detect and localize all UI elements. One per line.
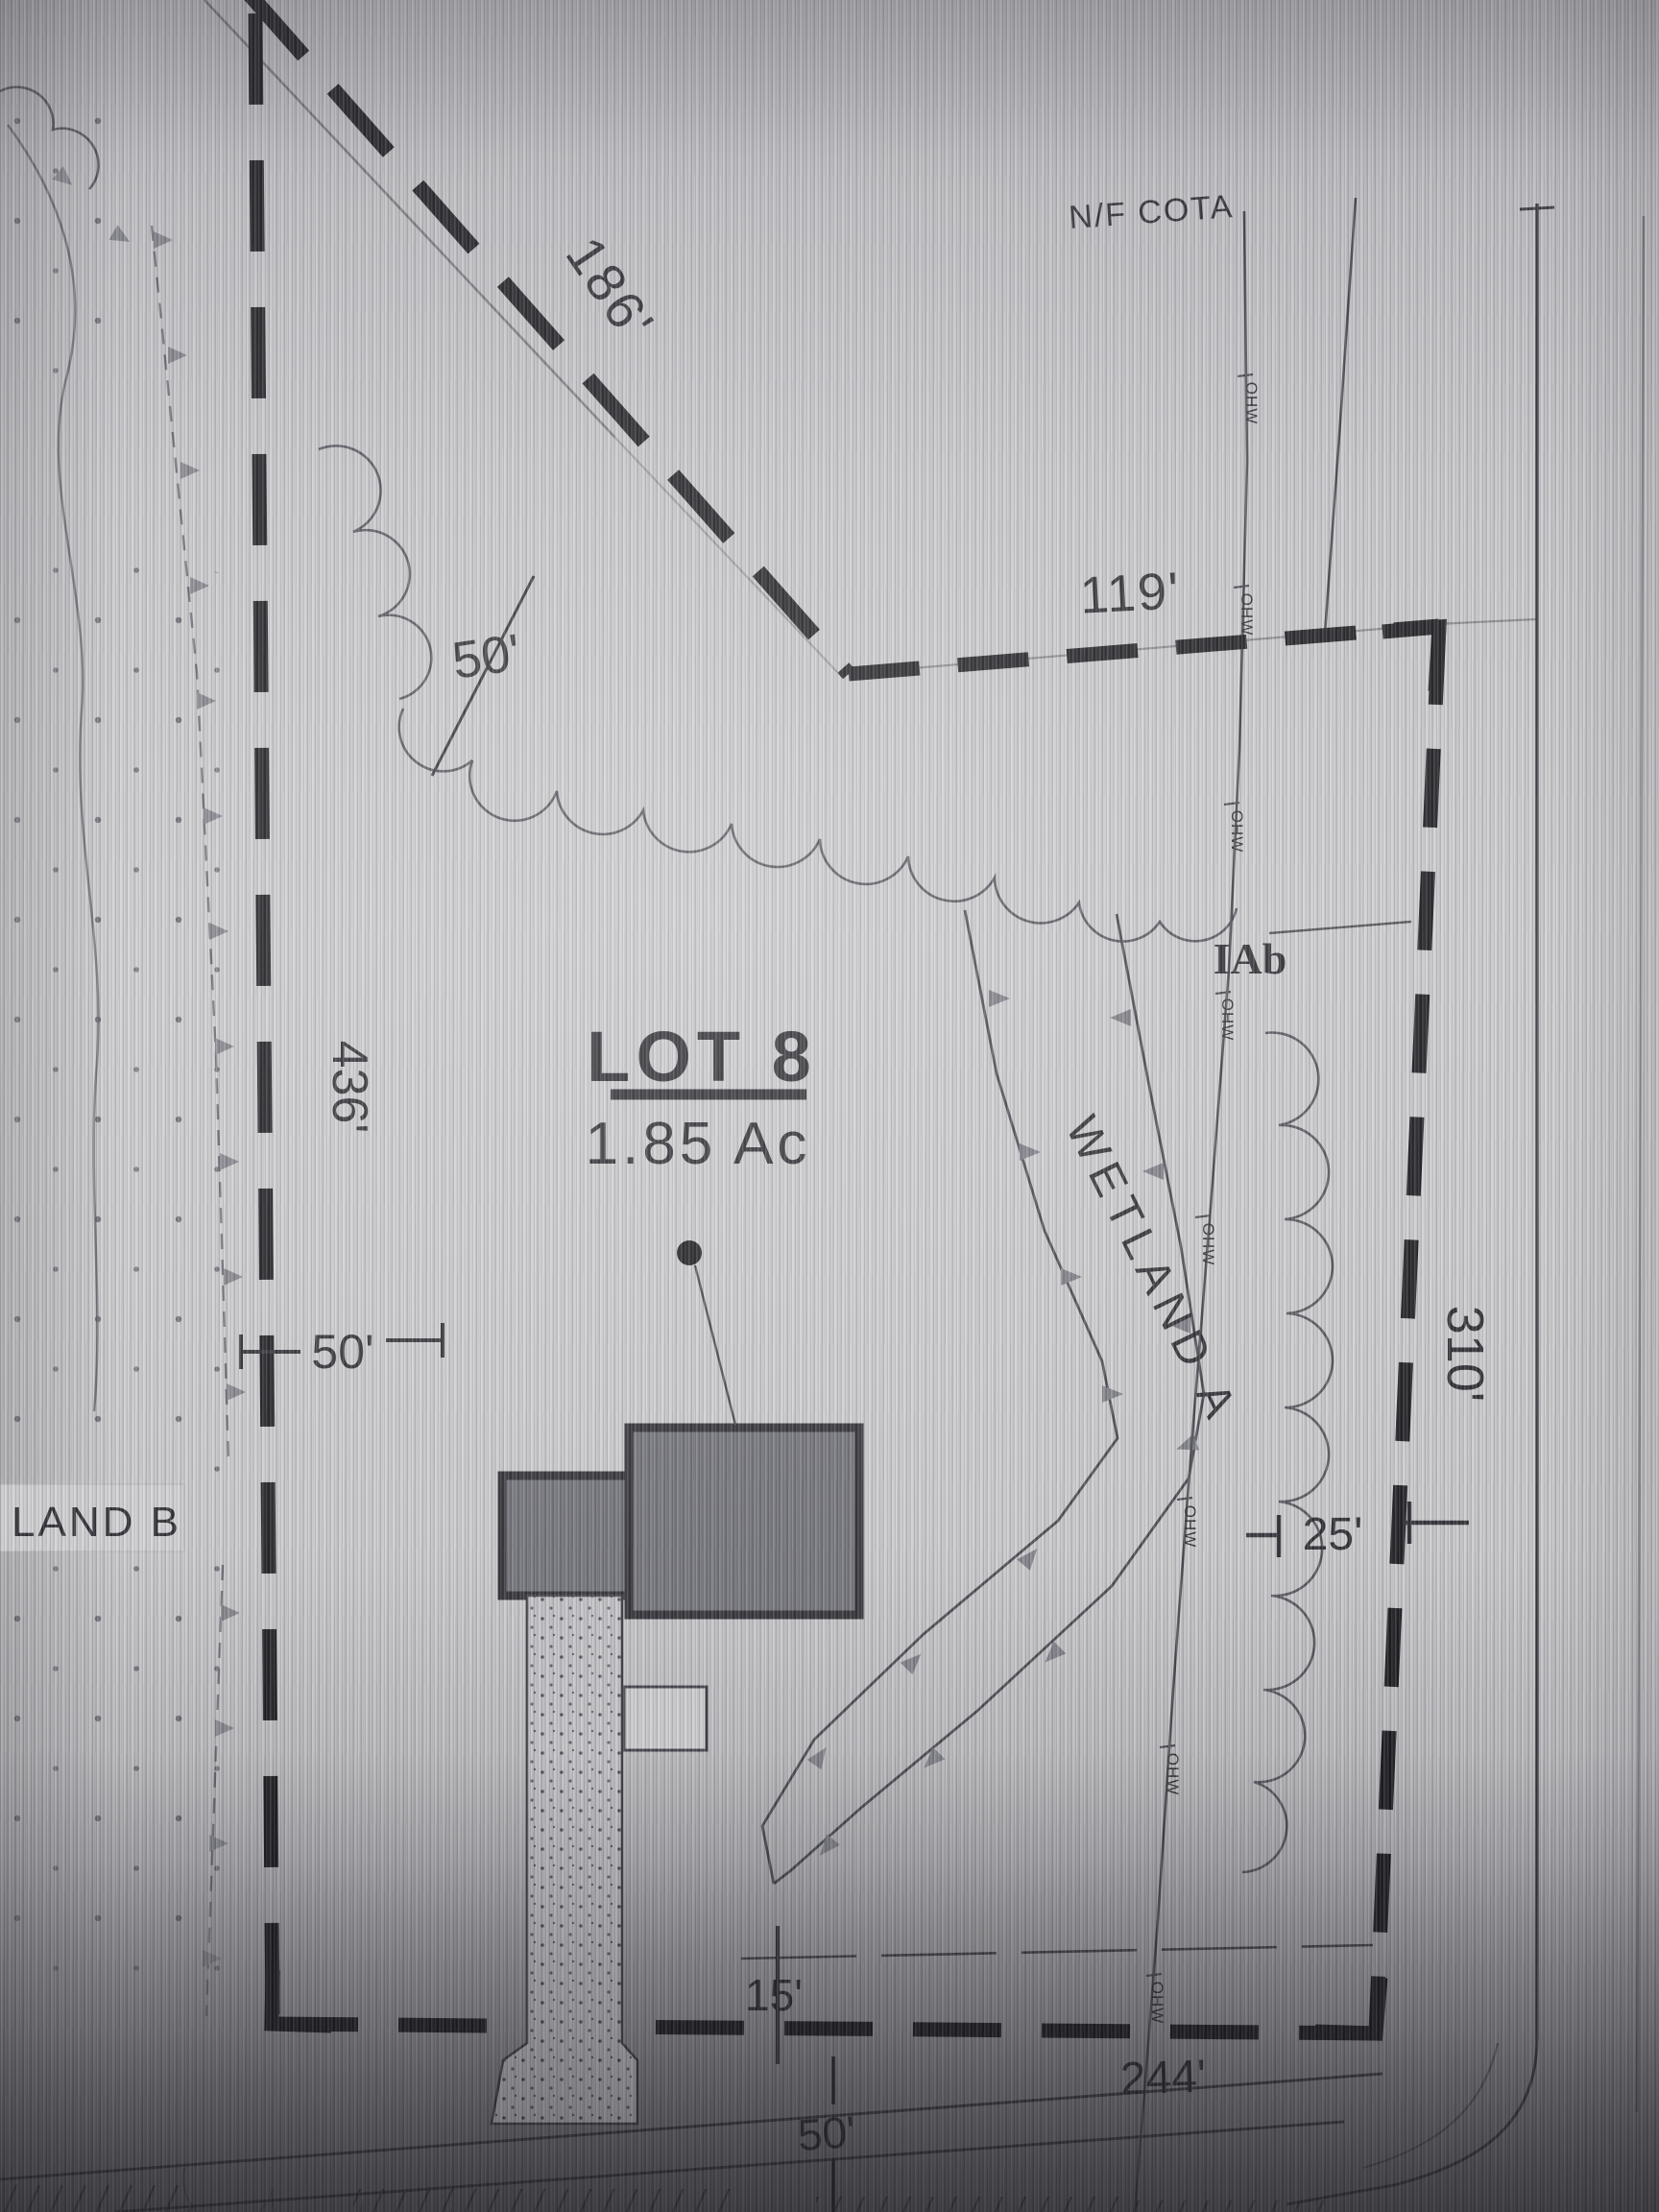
lot-title: LOT 8 <box>587 1017 817 1096</box>
dim-25-label: 25' <box>1303 1509 1363 1560</box>
dim-119-label: 119' <box>1078 562 1181 624</box>
dim-50-top-label: 50' <box>448 624 523 690</box>
wetland-b-stipple <box>0 67 248 2016</box>
site-plan-drawing: OHW OHW OHW OHW OHW OHW OHW OHW <box>0 0 1659 2212</box>
side-pad <box>624 1687 707 1750</box>
wetland-b-label: LAND B <box>12 1499 181 1546</box>
abutter-line <box>1325 198 1356 634</box>
ohw-label: OHW <box>1218 998 1237 1042</box>
property-boundary <box>248 0 1439 2033</box>
ohw-label: OHW <box>1238 593 1256 637</box>
ohw-label: OHW <box>1181 1505 1199 1549</box>
ohw-label: OHW <box>1242 382 1261 425</box>
dim-186-label: 186' <box>555 226 667 352</box>
dimension-lines <box>241 576 1469 2212</box>
well-symbol <box>677 1240 735 1425</box>
wetland-b-label-box: LAND B <box>0 1484 184 1551</box>
driveway <box>492 1596 637 2124</box>
dim-310-label: 310' <box>1436 1306 1494 1402</box>
dim-50-bottom-label: 50' <box>796 2106 856 2160</box>
dim-436-label: 436' <box>322 1041 377 1134</box>
old-line-north <box>204 0 1536 674</box>
ohw-label: OHW <box>1228 810 1246 854</box>
garage-rect <box>502 1476 632 1596</box>
ohw-label: OHW <box>1199 1223 1217 1266</box>
dim-50-left-label: 50' <box>311 1325 373 1379</box>
ohw-label: OHW <box>1148 1982 1166 2025</box>
house-footprint <box>502 1428 859 1615</box>
wetland-a-label: WETLAND A <box>1056 1109 1249 1432</box>
road-lines <box>0 204 1644 2212</box>
ohw-label: OHW <box>1164 1753 1182 1796</box>
survey-plan-photo: OHW OHW OHW OHW OHW OHW OHW OHW <box>0 0 1659 2212</box>
dim-244-label: 244' <box>1119 2051 1207 2104</box>
dim-15-label: 15' <box>745 1970 803 2020</box>
lot-area: 1.85 Ac <box>586 1111 811 1177</box>
ohw-utility-line: OHW OHW OHW OHW OHW OHW OHW OHW <box>1135 211 1261 2212</box>
main-house-rect <box>629 1428 859 1615</box>
soil-label: IAb <box>1214 934 1287 983</box>
owner-label: N/F COTA <box>1068 188 1235 236</box>
wetland-a-boundary <box>762 910 1204 1884</box>
